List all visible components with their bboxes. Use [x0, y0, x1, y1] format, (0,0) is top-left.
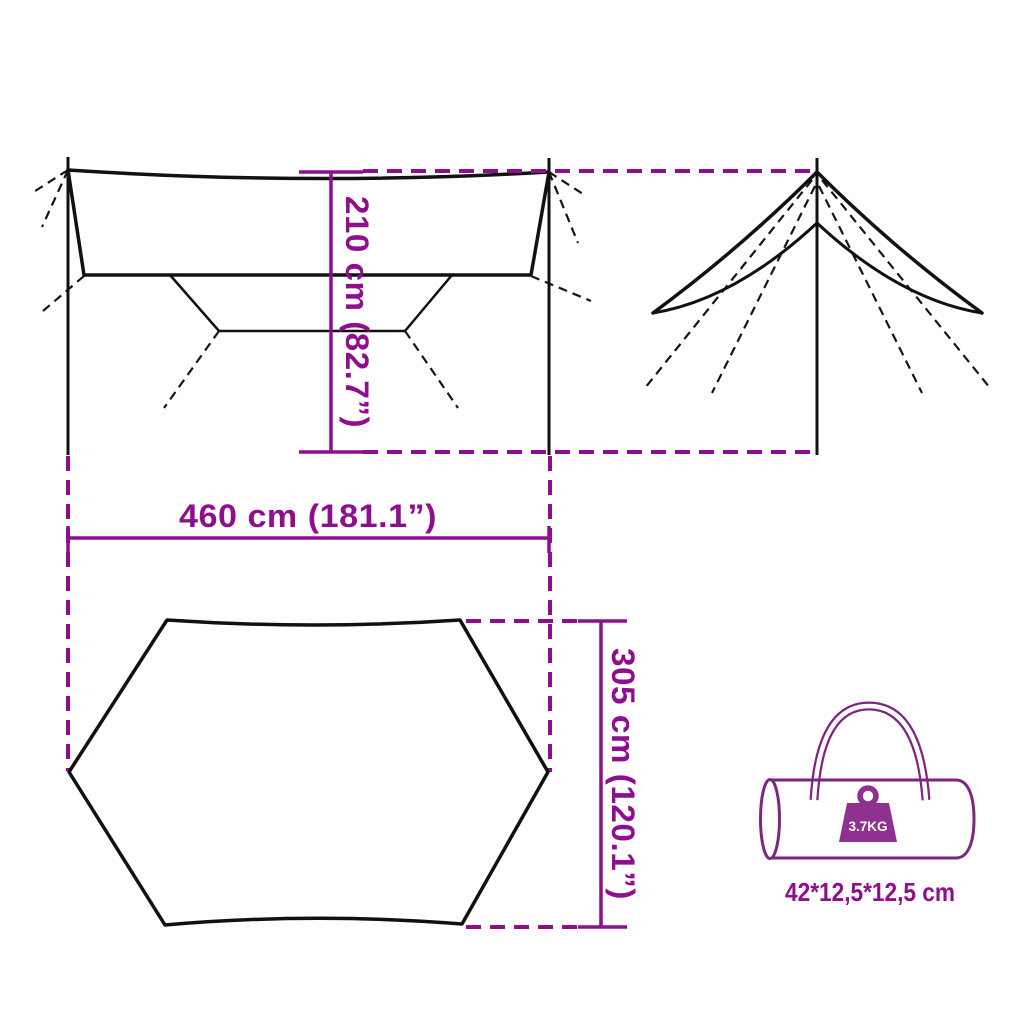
product-dimension-diagram: 210 cm (82.7”) 460 cm (181.1”) — [0, 0, 1024, 1024]
bag-end-cap — [761, 780, 780, 859]
side-inner-edge-right — [817, 223, 982, 313]
front-tarp-canopy — [68, 170, 549, 275]
height-dimension-label: 210 cm (82.7”) — [339, 196, 375, 428]
width-dimension-label: 460 cm (181.1”) — [179, 498, 437, 534]
depth-dimension-label: 305 cm (120.1”) — [605, 648, 641, 900]
tarp-diagram-canvas: 210 cm (82.7”) 460 cm (181.1”) — [0, 0, 1024, 1024]
top-view — [69, 620, 548, 925]
side-inner-edge-left — [653, 223, 817, 313]
front-view — [32, 157, 591, 455]
side-roof-left — [653, 172, 817, 313]
carry-bag: 3.7KG 42*12,5*12,5 cm — [761, 706, 975, 907]
side-roof-right — [817, 172, 982, 313]
side-view — [645, 158, 990, 455]
front-tarp-flap — [170, 275, 452, 331]
bag-size-label: 42*12,5*12,5 cm — [785, 877, 955, 907]
top-view-hexagon — [69, 620, 548, 925]
bag-weight-label: 3.7KG — [848, 819, 887, 834]
